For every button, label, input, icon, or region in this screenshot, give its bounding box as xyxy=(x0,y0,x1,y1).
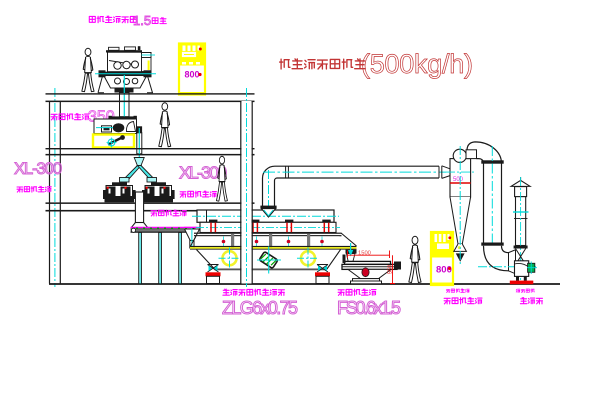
svg-text:1500: 1500 xyxy=(358,250,371,256)
svg-text:FS0.6x1.5: FS0.6x1.5 xyxy=(337,298,401,318)
svg-text:XL-300: XL-300 xyxy=(14,160,62,178)
svg-text:800: 800 xyxy=(436,265,452,276)
svg-text:550: 550 xyxy=(388,265,394,274)
svg-text:500: 500 xyxy=(453,177,464,183)
svg-text:1.5: 1.5 xyxy=(133,13,151,28)
svg-text:800: 800 xyxy=(185,70,200,80)
svg-text:ZLG6x0.75: ZLG6x0.75 xyxy=(222,298,298,318)
svg-text:(500kg/h): (500kg/h) xyxy=(361,49,473,79)
